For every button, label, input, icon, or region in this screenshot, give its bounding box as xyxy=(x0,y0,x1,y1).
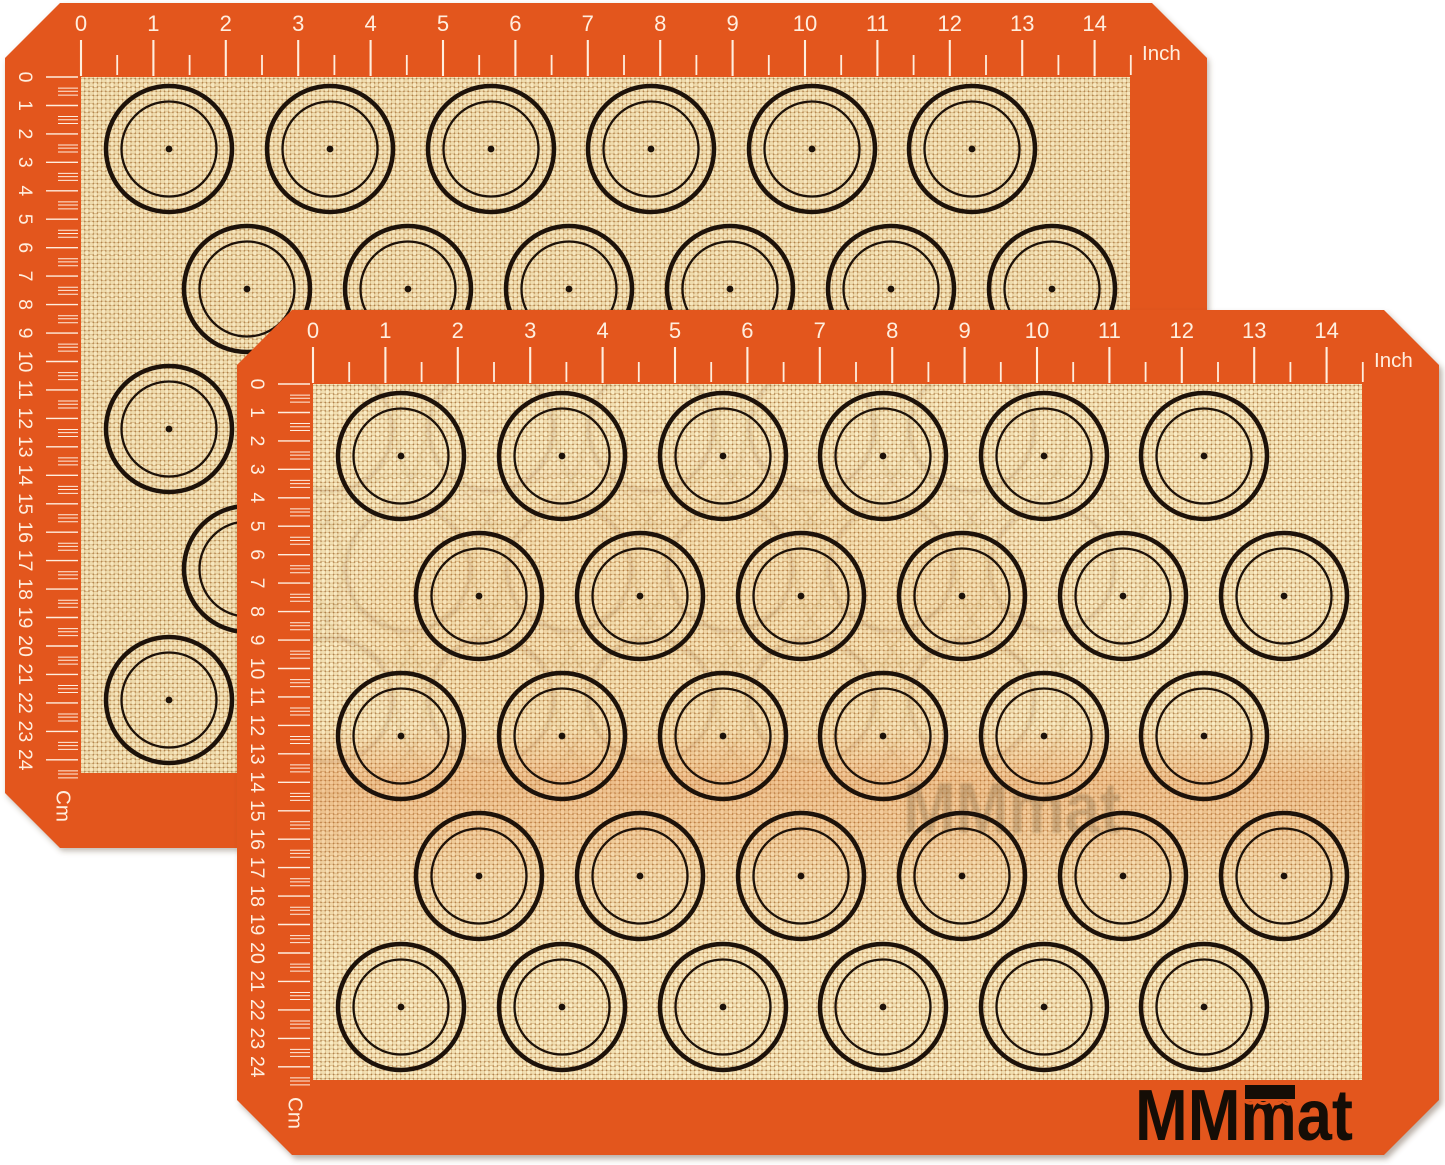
svg-text:19: 19 xyxy=(246,914,268,936)
svg-text:6: 6 xyxy=(246,549,268,560)
svg-text:16: 16 xyxy=(14,521,36,543)
svg-text:12: 12 xyxy=(1170,318,1194,343)
svg-text:11: 11 xyxy=(866,11,889,36)
svg-text:3: 3 xyxy=(14,157,36,168)
svg-text:4: 4 xyxy=(246,492,268,503)
svg-text:11: 11 xyxy=(14,380,36,400)
svg-text:23: 23 xyxy=(246,1028,268,1050)
svg-text:10: 10 xyxy=(246,658,268,680)
svg-text:3: 3 xyxy=(246,464,268,475)
svg-text:17: 17 xyxy=(14,550,36,572)
svg-text:0: 0 xyxy=(14,72,36,83)
svg-text:14: 14 xyxy=(1314,318,1338,343)
svg-text:12: 12 xyxy=(246,715,268,737)
svg-text:24: 24 xyxy=(14,749,36,771)
svg-text:11: 11 xyxy=(1098,318,1121,343)
svg-text:1: 1 xyxy=(14,100,36,111)
svg-text:14: 14 xyxy=(1082,11,1106,36)
svg-text:1: 1 xyxy=(246,407,268,418)
svg-text:8: 8 xyxy=(886,318,898,343)
svg-text:14: 14 xyxy=(246,771,268,793)
svg-text:9: 9 xyxy=(958,318,970,343)
svg-text:22: 22 xyxy=(246,999,268,1021)
svg-text:2: 2 xyxy=(220,11,232,36)
svg-text:4: 4 xyxy=(14,185,36,196)
svg-text:9: 9 xyxy=(726,11,738,36)
svg-text:12: 12 xyxy=(14,408,36,430)
svg-text:5: 5 xyxy=(246,521,268,532)
svg-text:Cm: Cm xyxy=(284,1097,307,1129)
svg-text:6: 6 xyxy=(741,318,753,343)
svg-text:18: 18 xyxy=(14,578,36,600)
svg-text:14: 14 xyxy=(14,464,36,486)
svg-text:5: 5 xyxy=(14,214,36,225)
svg-text:7: 7 xyxy=(246,578,268,589)
svg-text:13: 13 xyxy=(1010,11,1034,36)
svg-text:8: 8 xyxy=(654,11,666,36)
svg-text:5: 5 xyxy=(669,318,681,343)
svg-text:Inch: Inch xyxy=(1374,349,1413,372)
svg-text:7: 7 xyxy=(14,271,36,282)
svg-text:0: 0 xyxy=(246,379,268,390)
svg-text:1: 1 xyxy=(379,318,391,343)
svg-text:Cm: Cm xyxy=(52,790,75,822)
svg-text:3: 3 xyxy=(524,318,536,343)
svg-text:20: 20 xyxy=(14,635,36,657)
svg-text:21: 21 xyxy=(246,971,268,993)
svg-text:9: 9 xyxy=(246,635,268,646)
svg-text:13: 13 xyxy=(14,436,36,458)
svg-text:2: 2 xyxy=(246,435,268,446)
svg-text:7: 7 xyxy=(582,11,594,36)
svg-text:4: 4 xyxy=(596,318,608,343)
svg-text:1: 1 xyxy=(147,11,159,36)
svg-text:12: 12 xyxy=(938,11,962,36)
svg-text:Inch: Inch xyxy=(1142,42,1181,65)
svg-text:24: 24 xyxy=(246,1056,268,1078)
svg-text:7: 7 xyxy=(814,318,826,343)
svg-text:23: 23 xyxy=(14,721,36,743)
svg-text:10: 10 xyxy=(14,351,36,373)
svg-text:4: 4 xyxy=(364,11,376,36)
svg-text:13: 13 xyxy=(246,743,268,765)
svg-text:10: 10 xyxy=(1025,318,1049,343)
svg-text:20: 20 xyxy=(246,942,268,964)
svg-text:5: 5 xyxy=(437,11,449,36)
svg-text:8: 8 xyxy=(14,299,36,310)
svg-text:2: 2 xyxy=(452,318,464,343)
svg-text:15: 15 xyxy=(246,800,268,822)
svg-text:0: 0 xyxy=(307,318,319,343)
svg-text:0: 0 xyxy=(75,11,87,36)
svg-text:15: 15 xyxy=(14,493,36,515)
svg-text:8: 8 xyxy=(246,606,268,617)
svg-text:19: 19 xyxy=(14,607,36,629)
svg-text:6: 6 xyxy=(509,11,521,36)
svg-text:MMmat: MMmat xyxy=(1135,1076,1353,1156)
svg-text:18: 18 xyxy=(246,885,268,907)
svg-text:6: 6 xyxy=(14,242,36,253)
svg-text:13: 13 xyxy=(1242,318,1266,343)
svg-text:3: 3 xyxy=(292,11,304,36)
svg-text:22: 22 xyxy=(14,692,36,714)
svg-text:2: 2 xyxy=(14,128,36,139)
svg-text:17: 17 xyxy=(246,857,268,879)
svg-text:16: 16 xyxy=(246,828,268,850)
svg-text:10: 10 xyxy=(793,11,817,36)
svg-text:21: 21 xyxy=(14,664,36,686)
svg-text:9: 9 xyxy=(14,328,36,339)
svg-text:11: 11 xyxy=(246,687,268,707)
